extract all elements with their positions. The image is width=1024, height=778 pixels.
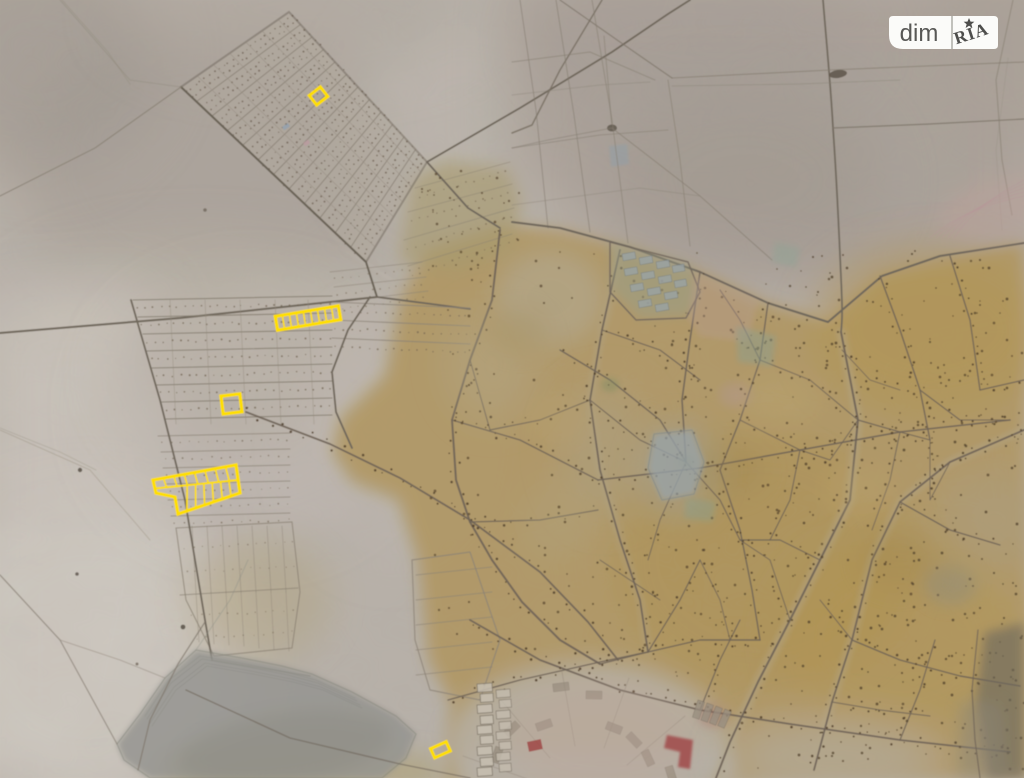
svg-text:dim: dim (900, 20, 939, 47)
